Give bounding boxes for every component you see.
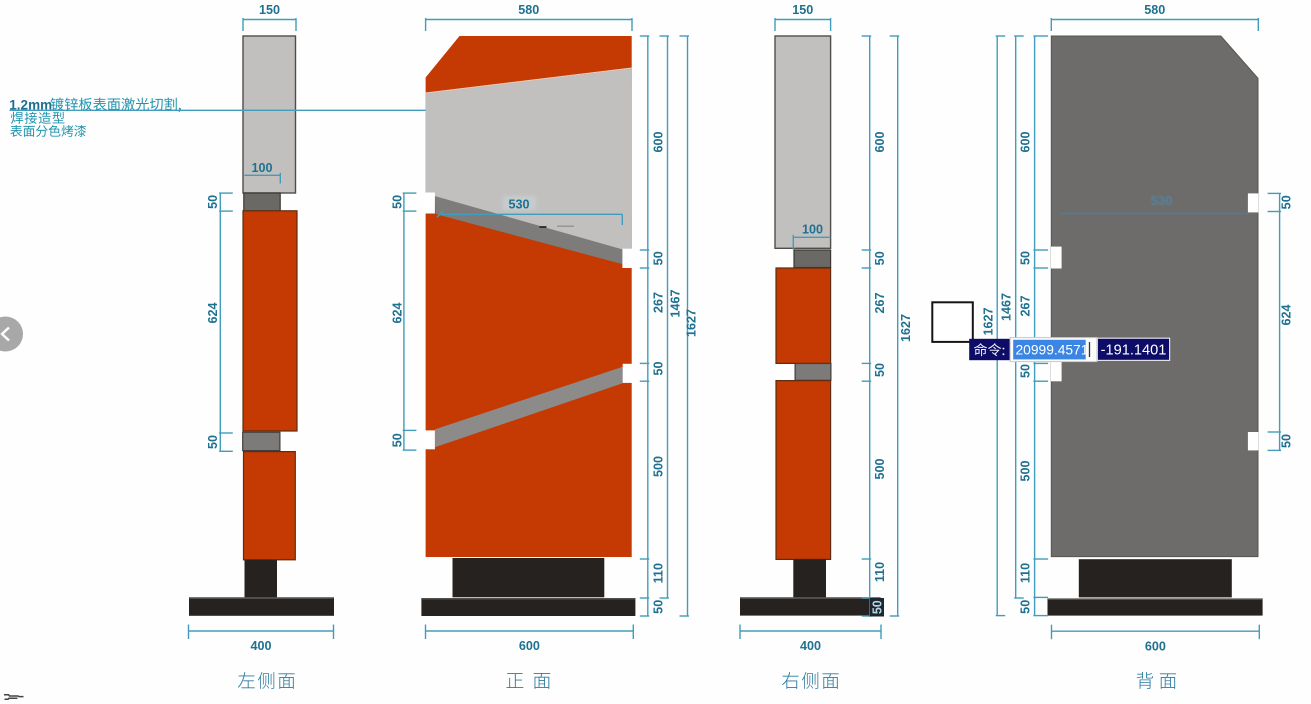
svg-text:267: 267 (873, 292, 887, 313)
svg-text:50: 50 (390, 195, 404, 209)
svg-text:267: 267 (1018, 295, 1032, 316)
svg-text:624: 624 (206, 302, 220, 323)
svg-text:500: 500 (1018, 460, 1032, 481)
svg-text:1627: 1627 (899, 314, 913, 342)
svg-text:110: 110 (873, 562, 887, 582)
svg-text:50: 50 (206, 195, 220, 209)
svg-text:1627: 1627 (685, 309, 699, 337)
svg-text:100: 100 (802, 223, 823, 237)
svg-text:624: 624 (1280, 304, 1294, 325)
svg-text:50: 50 (651, 600, 665, 614)
svg-text:530: 530 (508, 198, 529, 212)
svg-text:500: 500 (651, 456, 665, 477)
svg-text:50: 50 (873, 363, 887, 377)
svg-text:110: 110 (1018, 563, 1032, 583)
svg-text:50: 50 (1018, 600, 1032, 614)
svg-text:150: 150 (259, 3, 280, 17)
svg-text:150: 150 (792, 3, 813, 17)
svg-text:50: 50 (1018, 251, 1032, 265)
svg-text:50: 50 (651, 251, 665, 265)
svg-text:600: 600 (1018, 131, 1032, 152)
svg-text:530: 530 (1151, 193, 1173, 208)
svg-text:1467: 1467 (669, 289, 683, 317)
svg-text:1627: 1627 (981, 307, 995, 335)
svg-text:600: 600 (1145, 640, 1166, 654)
svg-text:50: 50 (206, 435, 220, 449)
svg-text:600: 600 (651, 131, 665, 152)
svg-text:50: 50 (870, 600, 884, 614)
svg-text:580: 580 (518, 3, 539, 17)
svg-text:1467: 1467 (999, 293, 1013, 321)
svg-text:100: 100 (251, 161, 272, 175)
svg-text:400: 400 (250, 639, 271, 653)
svg-text:50: 50 (651, 361, 665, 375)
svg-text:50: 50 (1018, 364, 1032, 378)
svg-text:20999.4571: 20999.4571 (1016, 343, 1089, 358)
svg-text:110: 110 (651, 563, 665, 583)
svg-text:400: 400 (800, 639, 821, 653)
svg-text:600: 600 (519, 639, 540, 653)
svg-text:50: 50 (1280, 434, 1294, 448)
svg-text:267: 267 (651, 292, 665, 313)
svg-text:-191.1401: -191.1401 (1101, 343, 1167, 359)
svg-text:50: 50 (873, 251, 887, 265)
svg-text:600: 600 (873, 131, 887, 152)
svg-text:500: 500 (873, 458, 887, 479)
svg-text:50: 50 (390, 433, 404, 447)
svg-text:624: 624 (390, 302, 404, 323)
svg-text:50: 50 (1280, 195, 1294, 209)
svg-text:580: 580 (1144, 3, 1165, 17)
